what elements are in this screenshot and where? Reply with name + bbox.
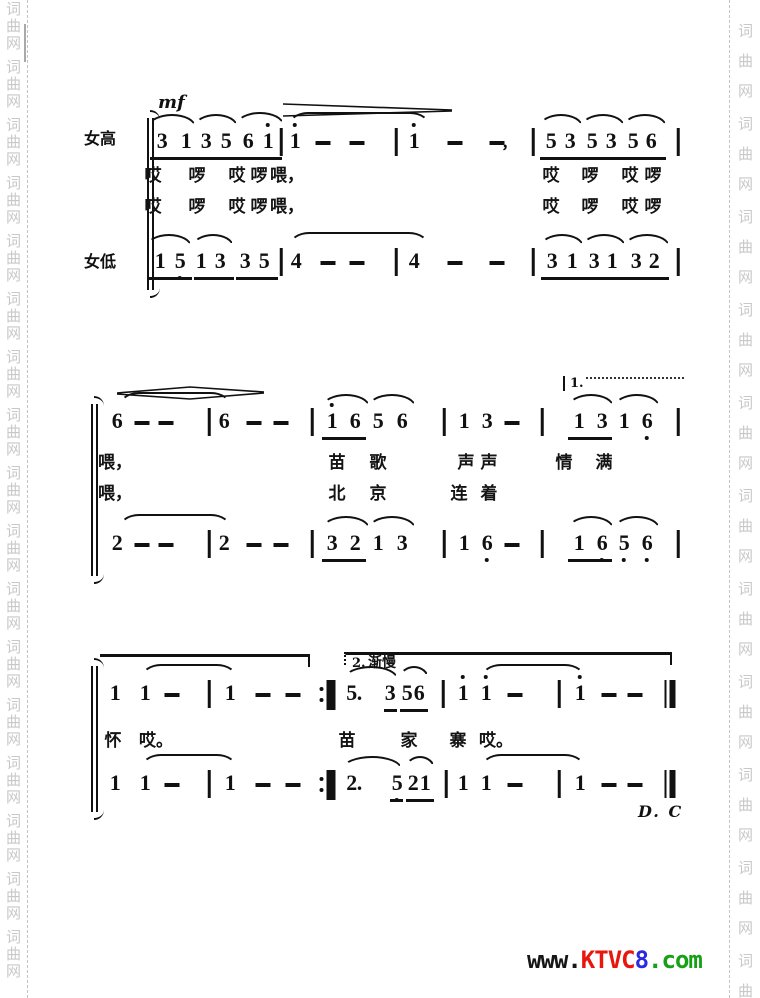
bar-token [541,408,544,436]
lyric-syllable: 京 [370,486,387,503]
slur-arc [568,516,614,529]
beam-underline [150,157,196,160]
dash-token [159,543,174,547]
bar-token [311,530,314,558]
dash-token [505,421,520,425]
lyric-syllable: 哎 [229,168,246,185]
bar-token [208,530,211,558]
beam-underline [322,559,366,562]
watermark-char: 网 [738,921,753,936]
note-token: 5 [587,130,598,152]
note-token: 1 [290,130,301,152]
lyric-syllable: 哎 [229,199,246,216]
slur-arc [322,394,370,407]
watermark-char: 网 [738,642,753,657]
dash-token [602,693,617,697]
watermark-char: 曲 [6,541,21,556]
dash-token [350,141,365,145]
watermark-char: 网 [6,500,21,515]
bar-token [443,408,446,436]
bar-token [677,408,680,436]
beam-underline [406,799,434,802]
tie-arc [141,664,237,680]
beam-underline [322,437,366,440]
watermark-char: 曲 [6,773,21,788]
watermark-char: 词 [6,60,21,75]
dash-token [274,421,289,425]
watermark-char: 词 [6,234,21,249]
note-token: 1 [409,130,420,152]
watermark-char: 曲 [6,251,21,266]
watermark-char: 词 [6,756,21,771]
note-token: 1 [225,772,236,794]
slur-arc [399,666,429,679]
note-token: 3 [327,532,338,554]
watermark-char: 网 [6,674,21,689]
bar-token [558,680,561,708]
note-token: 6 [646,130,657,152]
note-token: 5 [392,772,403,794]
breath-token: ， [501,132,516,153]
lyric-syllable: 连 [451,486,468,503]
dash-token [165,783,180,787]
alto-voice-label: 女低 [84,254,116,270]
note-token: 1 [327,410,338,432]
bar-token [280,128,283,156]
bar-token [442,680,445,708]
beam-underline [238,157,282,160]
dash-token [448,141,463,145]
lyric-syllable: 啰 [251,199,268,216]
watermark-char: 曲 [6,831,21,846]
watermark-char: 曲 [6,599,21,614]
dash-token [274,543,289,547]
beam-underline [583,277,625,280]
watermark-char: 曲 [6,947,21,962]
note-token: 3 [385,682,396,704]
bar-token [311,408,314,436]
note-token: 2 [350,532,361,554]
lyric-syllable: 哎 [145,199,162,216]
watermark-char: 网 [6,210,21,225]
dash-token [628,783,643,787]
note-token: 1 [459,410,470,432]
lyric-syllable: 情 [556,455,573,472]
note-token: 6 [219,410,230,432]
note-token: 1 [140,682,151,704]
lyric-syllable: 啰 [582,199,599,216]
watermark-char: 词 [6,872,21,887]
lyric-syllable: 寨 [450,733,467,750]
watermark-char: 词 [6,176,21,191]
watermark-char: 词 [6,2,21,17]
note-token: 6 [597,532,608,554]
watermark-char: 词 [738,954,753,969]
note-token: 3 [547,250,558,272]
watermark-char: 词 [738,24,753,39]
watermark-char: 网 [738,456,753,471]
lyric-syllable: 啰 [189,168,206,185]
note-token: 1 [110,772,121,794]
watermark-char: 曲 [6,193,21,208]
lyric-syllable: 哎。 [139,733,173,750]
dash-token [316,141,331,145]
watermark-char: 网 [6,558,21,573]
volta1-dotted-line [586,377,684,379]
watermark-char: 曲 [6,657,21,672]
note-token: 3 [565,130,576,152]
watermark-char: 词 [738,768,753,783]
lyric-syllable: 哎 [543,199,560,216]
watermark-char: 网 [6,964,21,979]
system2-start-barline [91,404,98,576]
watermark-char: 网 [6,906,21,921]
watermark-char: 词 [738,861,753,876]
watermark-char: 网 [6,94,21,109]
tie-arc [481,664,585,680]
beam-underline [196,157,238,160]
watermark-char: 网 [738,549,753,564]
note-token: 1 [481,682,492,704]
watermark-char: 曲 [738,798,753,813]
note-token: 1 [574,410,585,432]
bar-token [208,770,211,798]
note-token: 1 [575,682,586,704]
lyric-syllable: 怀 [105,733,122,750]
watermark-char: 曲 [738,519,753,534]
watermark-char: 词 [6,582,21,597]
watermark-char: 曲 [738,984,753,998]
watermark-char: 网 [6,790,21,805]
watermark-char: 词 [6,698,21,713]
slur-arc [194,114,238,127]
note-token: 2 [112,532,123,554]
beam-underline [582,157,624,160]
lyric-syllable: 满 [596,455,613,472]
beam-underline [568,559,612,562]
lyric-syllable: 喂， [98,486,132,503]
watermark-char: 曲 [738,705,753,720]
note-token: 3 [397,532,408,554]
watermark-char: 曲 [6,77,21,92]
watermark-char: 曲 [6,483,21,498]
dash-token [286,693,301,697]
note-token: 1 [607,250,618,272]
bar-token [541,530,544,558]
slur-arc [624,234,670,247]
dash-token [448,261,463,265]
left-edge-dashed-line [27,0,28,998]
lyric-syllable: 声 [481,455,498,472]
bar-repeat-token [319,680,336,710]
lyric-syllable: 啰 [251,168,268,185]
da-capo-mark: D. C [638,804,683,820]
bar-token [532,128,535,156]
logo-segment: www. [527,946,581,974]
tie-arc [481,754,585,770]
tie-arc [141,754,237,770]
note-token: 5 [175,250,186,272]
lyric-syllable: 哎 [622,168,639,185]
dash-token [602,783,617,787]
watermark-char: 网 [6,384,21,399]
watermark-char: 网 [738,828,753,843]
note-token: 6 [482,532,493,554]
watermark-char: 词 [6,524,21,539]
lyric-syllable: 啰 [645,199,662,216]
lyric-syllable: 哎 [622,199,639,216]
watermark-char: 词 [6,640,21,655]
slur-arc [368,516,416,529]
note-token: 1 [196,250,207,272]
watermark-char: 网 [6,442,21,457]
note-token: 6 [112,410,123,432]
watermark-char: 词 [6,466,21,481]
slur-arc [405,756,435,769]
slur-arc [623,114,667,127]
lyric-syllable: 喂， [270,168,304,185]
watermark-char: 词 [6,118,21,133]
dash-token [286,783,301,787]
watermark-char: 网 [738,735,753,750]
beam-underline [625,277,669,280]
system3-start-barline [91,666,98,812]
watermark-char: 曲 [6,715,21,730]
note-token: 1 [181,130,192,152]
note-token: 5 [373,410,384,432]
beam-underline [568,437,612,440]
dash-token [321,261,336,265]
watermark-char: 网 [738,270,753,285]
bar-token [208,680,211,708]
tie-arc [288,112,430,128]
tie-arc [119,514,231,530]
note-token: 1 [110,682,121,704]
slur-arc [368,394,416,407]
note-token: 1 [373,532,384,554]
dash-token [247,543,262,547]
note-token: 2 [649,250,660,272]
bar-token [677,128,680,156]
note-token: 1 [481,772,492,794]
slur-arc [236,112,284,125]
beam-underline [194,277,234,280]
scan-artifact-line [24,24,26,62]
bar-token [280,248,283,276]
volta1-label: 1. [570,377,584,390]
watermark-char: 曲 [738,240,753,255]
watermark-char: 词 [6,814,21,829]
note-token: 1 [459,532,470,554]
watermark-char: 词 [738,582,753,597]
note-token: 5 [546,130,557,152]
beam-underline [400,709,428,712]
watermark-char: 曲 [738,426,753,441]
watermark-char: 曲 [6,889,21,904]
lyric-syllable: 北 [329,486,346,503]
bar-token [677,248,680,276]
dash-token [165,693,180,697]
note-token: 3 [606,130,617,152]
note-token: 6 [243,130,254,152]
lyric-syllable: 啰 [189,199,206,216]
note-token: 3 [201,130,212,152]
bar-token [532,248,535,276]
bar-token [395,128,398,156]
right-edge-dashed-line [729,0,730,998]
watermark-char: 网 [6,268,21,283]
beam-underline [148,277,192,280]
watermark-char: 词 [738,489,753,504]
watermark-char: 曲 [6,135,21,150]
watermark-char: 词 [738,675,753,690]
note-token: 3 [157,130,168,152]
note-token: 1 [140,772,151,794]
note-token: 4 [409,250,420,272]
watermark-char: 曲 [738,612,753,627]
dash-token [508,693,523,697]
note-token: 1 [155,250,166,272]
watermark-char: 词 [6,408,21,423]
watermark-char: 曲 [738,54,753,69]
dash-token [256,693,271,697]
lyric-syllable: 苗 [329,455,346,472]
volta1-start-tick [563,376,565,391]
watermark-char: 网 [738,84,753,99]
beam-underline [624,157,666,160]
tie-arc [289,232,429,248]
note-token: 3 [589,250,600,272]
watermark-char: 曲 [738,333,753,348]
logo-segment: 8 [635,946,648,974]
watermark-char: 网 [6,36,21,51]
lyric-syllable: 喂， [270,199,304,216]
bar-final-token [665,770,676,798]
beam-underline [390,799,403,802]
lyric-syllable: 苗 [339,733,356,750]
lyric-syllable: 声 [458,455,475,472]
watermark-char: 网 [6,848,21,863]
tie-arc [119,392,231,408]
watermark-char: 网 [738,363,753,378]
sheet-music-page: 女高 女低 mf D. C 1. 2. 渐慢 www.KTVC8.com 词曲网… [0,0,760,998]
watermark-char: 网 [6,616,21,631]
slur-arc [342,756,402,769]
note-token: 1 [619,410,630,432]
watermark-char: 词 [738,396,753,411]
note-token: 6 [414,682,425,704]
bar-token [677,530,680,558]
note-token: 5 [619,532,630,554]
watermark-char: 词 [738,117,753,132]
watermark-char: 网 [738,177,753,192]
beam-underline [384,709,397,712]
note-token: 6 [642,410,653,432]
bar-repeat-token [319,770,336,800]
lyric-syllable: 啰 [582,168,599,185]
bar-token [443,530,446,558]
note-token: 1 [458,682,469,704]
note-token: 2 [408,772,419,794]
lyric-syllable: 着 [481,486,498,503]
note-token: 1 [574,532,585,554]
watermark-char: 曲 [6,309,21,324]
note-token: 1 [263,130,274,152]
lyric-syllable: 哎 [543,168,560,185]
bar-token [445,770,448,798]
dash-token [135,421,150,425]
note-token: 3 [597,410,608,432]
dash-token [628,693,643,697]
bar-final-token [665,680,676,708]
slur-arc [540,234,584,247]
note-token: 4 [291,250,302,272]
note-token: 5 [259,250,270,272]
note-token: 2 [219,532,230,554]
slur-arc [192,234,234,247]
slur-arc [614,516,660,529]
slur-arc [581,114,625,127]
beam-underline [540,157,582,160]
watermark-char: 词 [738,210,753,225]
dash-token [159,421,174,425]
note-token: 1 [225,682,236,704]
beam-underline [541,277,583,280]
watermark-char: 网 [6,152,21,167]
dash-token [505,543,520,547]
lyric-syllable: 哎 [145,168,162,185]
dash-token [247,421,262,425]
dash-token [350,261,365,265]
watermark-char: 曲 [6,19,21,34]
watermark-char: 曲 [6,425,21,440]
note-token: 6 [642,532,653,554]
watermark-char: 词 [6,292,21,307]
dash-token [490,261,505,265]
dash-token [508,783,523,787]
ktvc8-watermark-logo: www.KTVC8.com [527,948,702,972]
bar-token [395,248,398,276]
note-token: 6 [397,410,408,432]
note-token: 3 [482,410,493,432]
bar-token [208,408,211,436]
watermark-char: 词 [6,930,21,945]
note-token: 6 [350,410,361,432]
dynamic-mark-mf: mf [158,94,185,112]
note-token: 5 [221,130,232,152]
bar-token [558,770,561,798]
note-token: 5 [402,682,413,704]
dash-token [135,543,150,547]
note-token: 3 [240,250,251,272]
lyric-syllable: 歌 [370,455,387,472]
watermark-char: 曲 [738,891,753,906]
slur-arc [568,394,614,407]
note-token: 5 [628,130,639,152]
note-token: 3 [631,250,642,272]
watermark-char: 曲 [6,367,21,382]
soprano-voice-label: 女高 [84,131,116,147]
logo-segment: .com [648,946,702,974]
slur-arc [539,114,583,127]
note-token: 1 [458,772,469,794]
dash-token [256,783,271,787]
note-token: 1 [420,772,431,794]
note-token: 5. [346,682,362,704]
watermark-char: 网 [6,732,21,747]
note-token: 3 [215,250,226,272]
beam-underline [236,277,278,280]
